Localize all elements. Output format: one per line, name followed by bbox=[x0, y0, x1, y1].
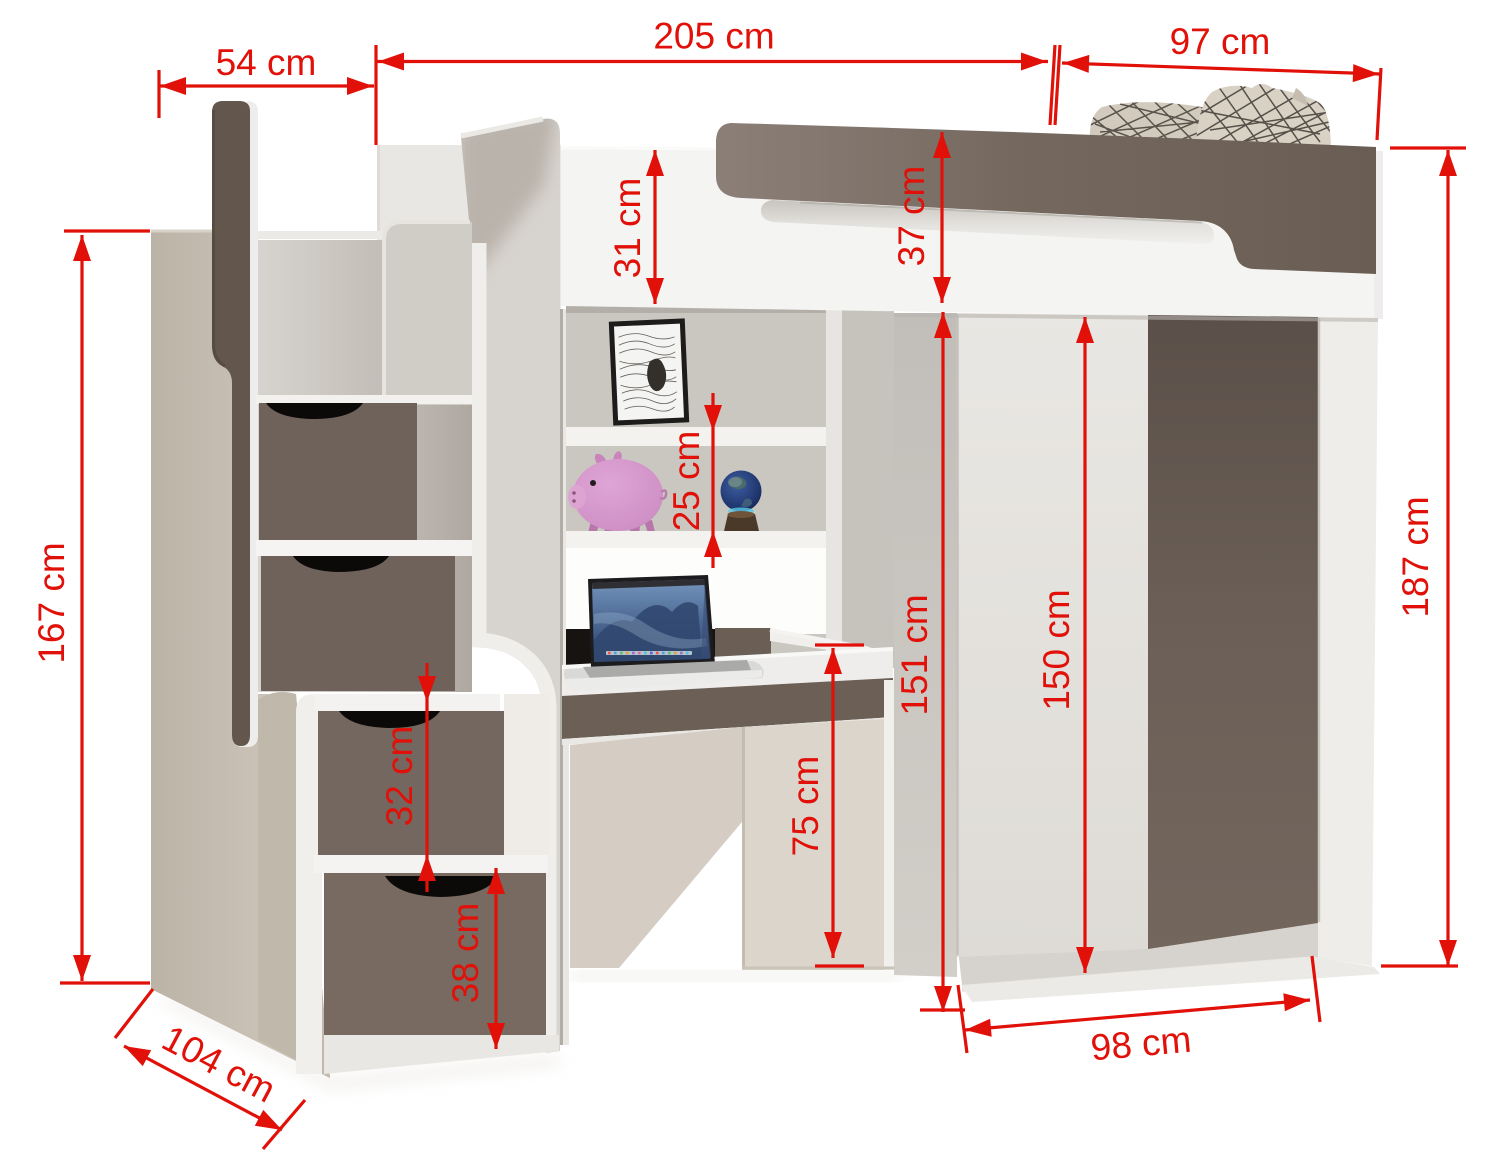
svg-text:167 cm: 167 cm bbox=[31, 542, 72, 663]
svg-text:37 cm: 37 cm bbox=[891, 166, 932, 267]
svg-text:25 cm: 25 cm bbox=[666, 431, 707, 532]
svg-text:32 cm: 32 cm bbox=[379, 726, 420, 827]
svg-text:31 cm: 31 cm bbox=[607, 178, 648, 279]
svg-text:75 cm: 75 cm bbox=[785, 756, 826, 857]
svg-text:98 cm: 98 cm bbox=[1089, 1019, 1193, 1069]
svg-text:205 cm: 205 cm bbox=[653, 16, 774, 57]
svg-text:38 cm: 38 cm bbox=[445, 903, 486, 1004]
svg-text:187 cm: 187 cm bbox=[1395, 496, 1436, 617]
svg-text:151 cm: 151 cm bbox=[894, 594, 935, 715]
svg-text:150 cm: 150 cm bbox=[1036, 589, 1077, 710]
svg-text:97 cm: 97 cm bbox=[1170, 21, 1271, 62]
svg-text:54 cm: 54 cm bbox=[216, 42, 317, 83]
